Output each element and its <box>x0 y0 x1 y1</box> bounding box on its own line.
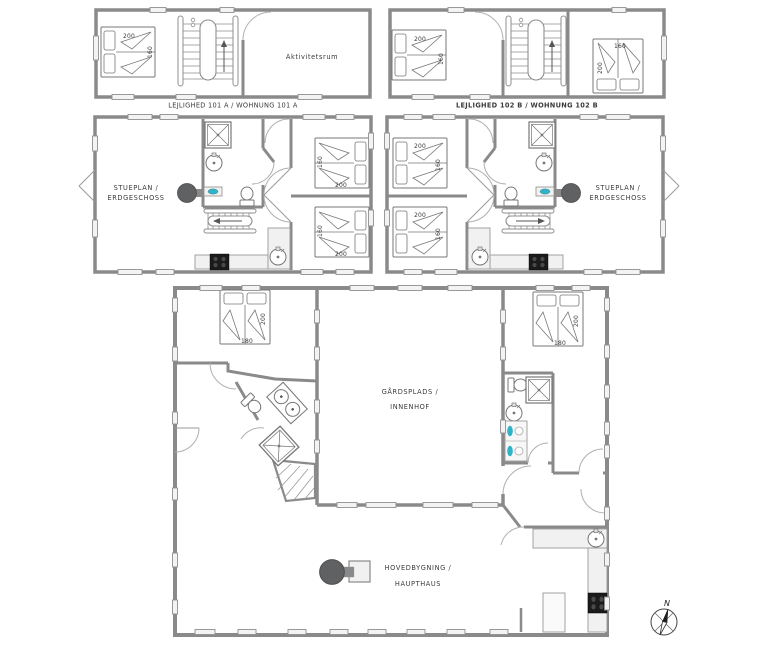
bed-dim-horizontal: 200 <box>335 251 347 258</box>
compass-icon: N <box>651 599 677 635</box>
stove-icon <box>210 254 229 270</box>
room-label: Aktivitetsrum <box>286 53 338 61</box>
toilet-icon <box>504 187 518 206</box>
shower-icon <box>526 377 552 403</box>
patio-door <box>663 170 679 202</box>
building-label: HAUPTHAUS <box>395 580 441 588</box>
building-label: HOVEDBYGNING / <box>385 564 452 572</box>
bed-dim-vertical: 200 <box>260 313 267 325</box>
plan-main-building: GÅRDSPLADS / INNENHOF HOVEDBYGNING / HAU… <box>173 286 610 636</box>
shower-icon <box>205 122 231 148</box>
bed-dim-horizontal: 200 <box>335 182 347 189</box>
patio-door <box>79 170 95 202</box>
shower-icon <box>529 122 555 148</box>
north-label: N <box>664 599 670 608</box>
bed-dim-horizontal: 200 <box>123 33 135 40</box>
vanity-sink-icon <box>204 187 222 196</box>
bed-dim-vertical: 160 <box>317 156 324 168</box>
bed-dim-vertical: 160 <box>147 46 154 58</box>
plan-ground-101: STUEPLAN / ERDGESCHOSS 160 200 160 200 <box>79 115 374 275</box>
plan-ground-102: STUEPLAN / ERDGESCHOSS 200 160 200 160 <box>385 115 680 275</box>
appliance <box>543 593 565 632</box>
toilet-icon <box>508 378 527 392</box>
bed-dim-vertical: 160 <box>435 228 442 240</box>
bed-dim-horizontal: 200 <box>414 212 426 219</box>
stairs-icon <box>502 209 554 233</box>
bed-dim-horizontal: 160 <box>614 43 626 50</box>
vanity-sink-icon <box>536 187 554 196</box>
bed-dim-horizontal: 180 <box>241 338 253 345</box>
stairs-icon <box>204 209 256 233</box>
bed-dim-vertical: 200 <box>597 62 604 74</box>
plan-upper-101: 200 160 Aktivitetsrum LEJLIGHED 101 A / … <box>94 8 371 110</box>
courtyard-label: GÅRDSPLADS / <box>382 387 439 396</box>
washer-icon <box>505 421 527 461</box>
bed-dim-vertical: 160 <box>435 159 442 171</box>
toilet-icon <box>240 187 254 206</box>
plan-title: LEJLIGHED 101 A / WOHNUNG 101 A <box>168 102 298 110</box>
courtyard-label: INNENHOF <box>390 403 430 411</box>
bed-dim-vertical: 200 <box>573 315 580 327</box>
bed-dim-horizontal: 180 <box>554 340 566 347</box>
bed-dim-horizontal: 200 <box>414 36 426 43</box>
bed-dim-vertical: 160 <box>317 225 324 237</box>
room-label: ERDGESCHOSS <box>589 194 646 202</box>
room-label: STUEPLAN / <box>596 184 641 192</box>
bed-dim-horizontal: 200 <box>414 143 426 150</box>
room-label: STUEPLAN / <box>114 184 159 192</box>
floor-plan-drawing: 200 160 Aktivitetsrum LEJLIGHED 101 A / … <box>0 0 770 667</box>
plan-upper-102: 200 160 160 200 LEJLIGHED 102 B / WOHNUN… <box>390 8 667 110</box>
plan-title: LEJLIGHED 102 B / WOHNUNG 102 B <box>456 102 598 110</box>
room-label: ERDGESCHOSS <box>107 194 164 202</box>
stove-icon <box>529 254 548 270</box>
bed-dim-vertical: 160 <box>438 53 445 65</box>
floor-plan-canvas: 200 160 Aktivitetsrum LEJLIGHED 101 A / … <box>0 0 770 667</box>
